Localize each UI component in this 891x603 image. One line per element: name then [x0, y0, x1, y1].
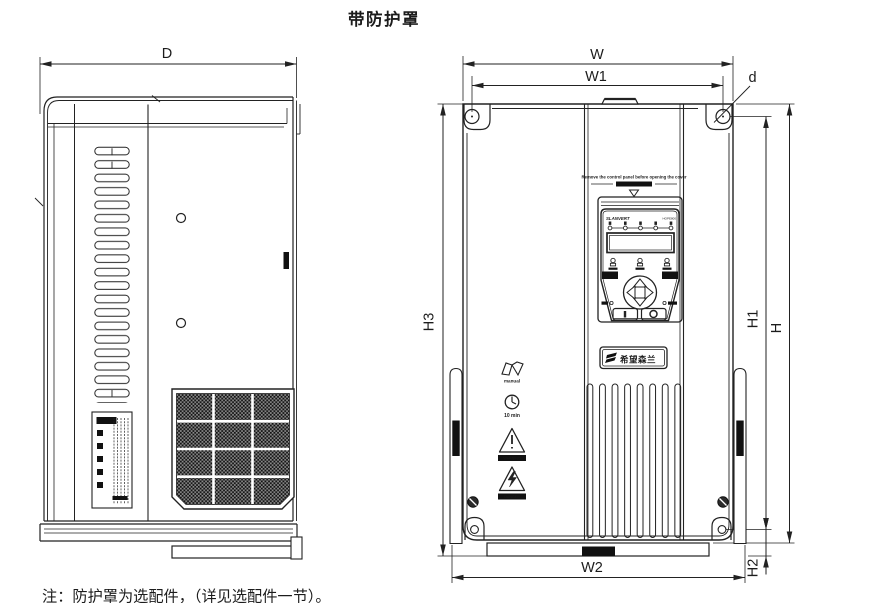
- left-ear-pocket: [464, 104, 490, 130]
- danger-caption: DANGER: [504, 495, 520, 499]
- keypad-function-icons: [609, 258, 672, 270]
- dpad-right-arrow: [645, 286, 653, 299]
- technical-drawing: 带防护罩: [0, 0, 891, 603]
- dpad-left-arrow: [627, 286, 635, 299]
- keypad-model: HOPE800: [662, 217, 676, 221]
- warning-text-en: Remove the control panel before opening …: [581, 175, 686, 180]
- page-title: 带防护罩: [348, 9, 420, 29]
- dim-H1-label: H1: [746, 310, 762, 329]
- side-latch: [284, 252, 290, 269]
- keypad-brand: SLANVERT: [606, 216, 630, 221]
- warning-triangle-icon: [500, 429, 525, 453]
- drawing-page: 带防护罩: [0, 0, 891, 603]
- dim-W1-label: W1: [585, 69, 607, 85]
- bottom-fins: [587, 384, 681, 538]
- clock-icon: [505, 395, 519, 409]
- safety-icons: manual 10 min WARNING DANGER: [498, 362, 526, 500]
- warning-text-cn-bar: [616, 182, 652, 187]
- side-view: [35, 57, 302, 559]
- base-plate-latch: [582, 547, 615, 557]
- dim-H3-label: H3: [422, 313, 438, 332]
- footnote: 注：防护罩为选配件，（详见选配件一节）。: [42, 589, 331, 603]
- front-view: Remove the control panel before opening …: [438, 56, 795, 583]
- side-nameplate: [92, 412, 132, 508]
- dimension-depth: [40, 57, 297, 114]
- bottom-fasteners: [465, 497, 731, 556]
- keypad-lcd: [607, 233, 674, 253]
- keypad-led-row: [608, 222, 673, 230]
- side-hole-lower: [177, 319, 186, 328]
- side-fan-grille: [172, 389, 294, 509]
- dim-d-label: d: [748, 70, 756, 86]
- timer-caption: 10 min: [504, 413, 520, 419]
- dim-W2-label: W2: [581, 560, 603, 576]
- dim-D-label: D: [162, 46, 172, 62]
- triangle-down-icon: [630, 190, 639, 197]
- keypad: SLANVERT HOPE800: [598, 197, 682, 322]
- side-vent-slots: [94, 146, 130, 403]
- cover-warning-strip: Remove the control panel before opening …: [581, 175, 686, 197]
- keypad-right-button: [662, 272, 678, 280]
- warning-caption: WARNING: [503, 457, 520, 461]
- manual-caption: manual: [504, 379, 520, 384]
- dim-H2-label: H2: [746, 559, 762, 578]
- keypad-left-button: [602, 272, 618, 280]
- keypad-dpad: [624, 276, 657, 309]
- brand-logo-plate: 希望森兰: [600, 347, 667, 369]
- side-channels: [450, 369, 746, 544]
- danger-triangle-icon: [500, 467, 525, 491]
- dim-H-label: H: [769, 323, 785, 333]
- manual-book-icon: [502, 362, 523, 375]
- side-base: [40, 521, 302, 559]
- side-hole-upper: [177, 214, 186, 223]
- brand-logo-text: 希望森兰: [620, 355, 656, 365]
- dim-W-label: W: [590, 47, 604, 63]
- left-edge-tick: [35, 198, 43, 206]
